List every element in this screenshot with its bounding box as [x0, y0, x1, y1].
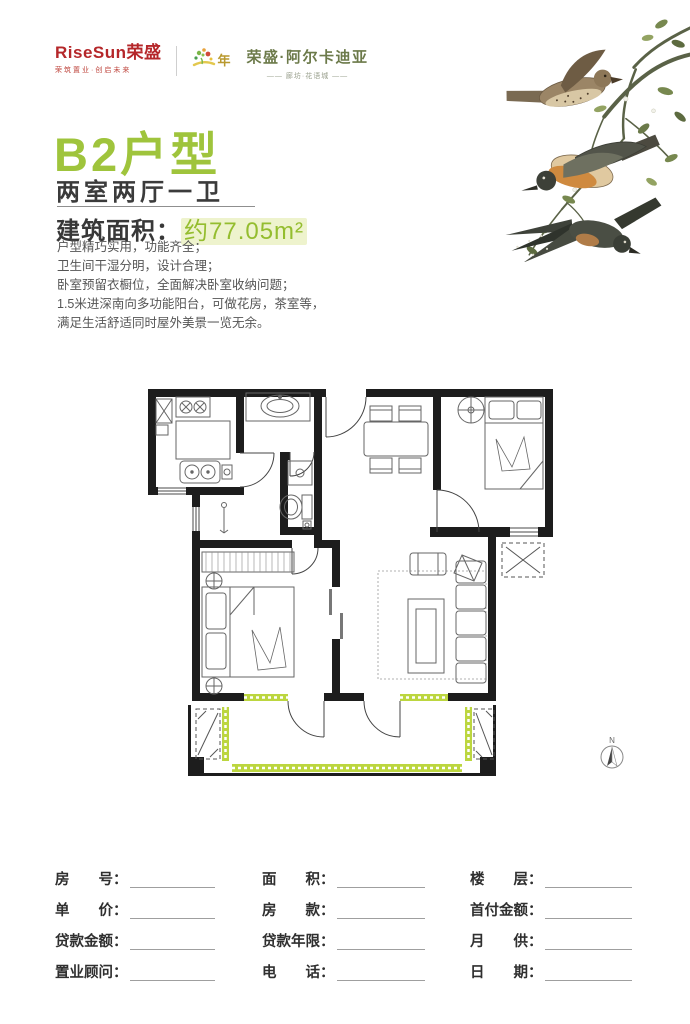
doors	[240, 397, 479, 737]
field-blank-line	[130, 935, 216, 950]
field-label: 月 供：	[470, 930, 543, 951]
header: RiseSun荣盛 荣筑置业·创启未来 年 荣盛·阿尔卡迪亚 —— 廊坊·花语城…	[55, 44, 369, 81]
feature-item: 1.5米进深南向多功能阳台，可做花房，茶室等，	[57, 295, 324, 314]
field-label: 电 话：	[262, 961, 335, 982]
field-blank-line	[130, 904, 216, 919]
risesun-logo: RiseSun荣盛 荣筑置业·创启未来	[55, 44, 162, 75]
risesun-logo-tagline: 荣筑置业·创启未来	[55, 65, 162, 75]
form-field-down-payment: 首付金额：	[470, 889, 632, 920]
field-blank-line	[545, 873, 633, 888]
feature-list: 户型精巧实用，功能齐全； 卫生间干湿分明，设计合理； 卧室预留衣橱位，全面解决卧…	[57, 238, 324, 333]
bird-middle	[521, 106, 662, 220]
header-divider	[176, 46, 177, 76]
form-field-phone: 电 话：	[262, 951, 470, 982]
field-blank-line	[130, 873, 216, 888]
feature-item: 户型精巧实用，功能齐全；	[57, 238, 324, 257]
washbasin	[246, 393, 310, 421]
walls	[148, 389, 553, 776]
anniversary-splash-icon	[191, 46, 217, 72]
coat-stand	[220, 503, 228, 534]
dining-set	[364, 406, 428, 473]
contact-form: 房 号： 单 价： 贷款金额： 置业顾问： 面 积： 房 款： 贷款年限：	[55, 858, 632, 982]
field-label: 首付金额：	[470, 899, 543, 920]
master-bedroom	[202, 552, 294, 694]
field-blank-line	[545, 966, 633, 981]
form-field-room-number: 房 号：	[55, 858, 262, 889]
form-field-area: 面 积：	[262, 858, 470, 889]
field-blank-line	[337, 873, 426, 888]
form-field-house-payment: 房 款：	[262, 889, 470, 920]
form-column-2: 面 积： 房 款： 贷款年限： 电 话：	[262, 858, 470, 982]
flyer-page: RiseSun荣盛 荣筑置业·创启未来 年 荣盛·阿尔卡迪亚 —— 廊坊·花语城…	[0, 0, 690, 1024]
unit-layout: 两室两厅一卫	[56, 172, 224, 207]
field-label: 面 积：	[262, 868, 335, 889]
balcony-windows	[222, 694, 472, 772]
field-blank-line	[337, 904, 426, 919]
field-label: 贷款年限：	[262, 930, 335, 951]
anniversary-mark: 年	[191, 46, 231, 72]
form-field-floor: 楼 层：	[470, 858, 632, 889]
bedroom-2	[458, 397, 543, 489]
field-blank-line	[337, 966, 426, 981]
field-label: 楼 层：	[470, 868, 543, 889]
risesun-logo-text: RiseSun荣盛	[55, 44, 162, 62]
form-field-date: 日 期：	[470, 951, 632, 982]
field-blank-line	[337, 935, 426, 950]
form-field-consultant: 置业顾问：	[55, 951, 262, 982]
anniversary-label: 年	[218, 50, 231, 69]
feature-item: 卫生间干湿分明，设计合理；	[57, 257, 324, 276]
form-field-unit-price: 单 价：	[55, 889, 262, 920]
field-label: 房 款：	[262, 899, 335, 920]
branches	[529, 28, 690, 255]
field-label: 置业顾问：	[55, 961, 128, 982]
kitchen	[156, 397, 232, 483]
bird-bottom	[506, 198, 662, 262]
field-label: 房 号：	[55, 868, 128, 889]
field-blank-line	[545, 935, 633, 950]
form-field-loan-amount: 贷款金额：	[55, 920, 262, 951]
north-compass: N	[601, 736, 623, 768]
bird-top	[500, 47, 626, 119]
project-name: 荣盛·阿尔卡迪亚	[247, 46, 369, 67]
field-label: 贷款金额：	[55, 930, 128, 951]
living-room	[378, 553, 486, 683]
title-rule	[57, 206, 255, 207]
bird-illustration	[478, 0, 690, 262]
form-field-loan-term: 贷款年限：	[262, 920, 470, 951]
leaves	[525, 18, 687, 257]
feature-item: 卧室预留衣橱位，全面解决卧室收纳问题；	[57, 276, 324, 295]
field-blank-line	[545, 904, 633, 919]
field-blank-line	[130, 966, 216, 981]
form-column-3: 楼 层： 首付金额： 月 供： 日 期：	[470, 858, 632, 982]
project-subtitle: —— 廊坊·花语城 ——	[267, 71, 348, 81]
project-logo: 荣盛·阿尔卡迪亚 —— 廊坊·花语城 ——	[247, 46, 369, 81]
form-field-monthly-payment: 月 供：	[470, 920, 632, 951]
form-column-1: 房 号： 单 价： 贷款金额： 置业顾问：	[55, 858, 262, 982]
field-label: 单 价：	[55, 899, 128, 920]
feature-item: 满足生活舒适同时屋外美景一览无余。	[57, 314, 324, 333]
field-label: 日 期：	[470, 961, 543, 982]
compass-label: N	[609, 736, 615, 745]
floor-plan: N	[140, 375, 640, 787]
